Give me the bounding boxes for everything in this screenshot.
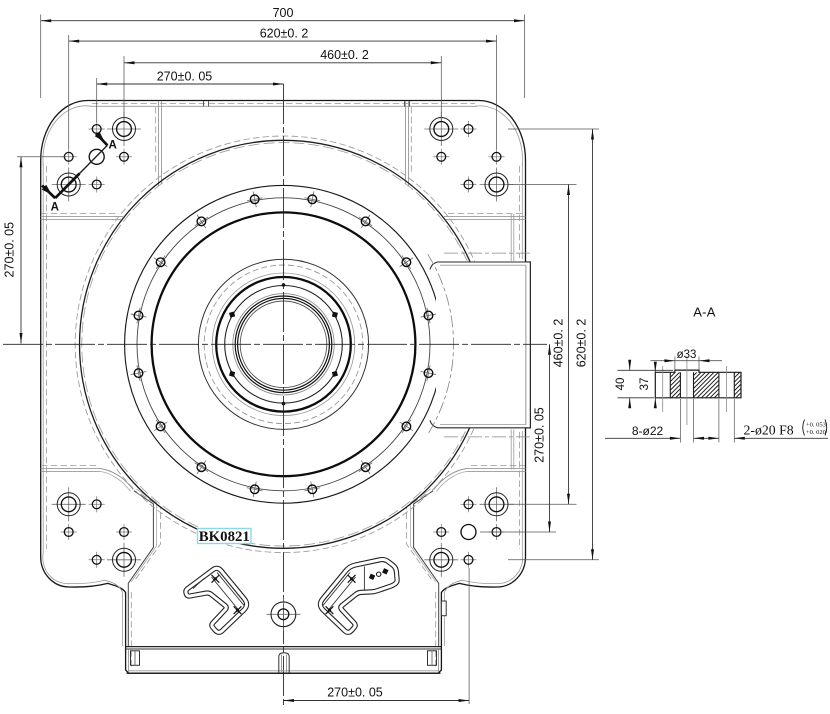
svg-text:37: 37: [639, 378, 651, 391]
svg-text:620±0. 2: 620±0. 2: [575, 319, 589, 368]
svg-text:460±0. 2: 460±0. 2: [320, 48, 369, 62]
svg-text:270±0. 05: 270±0. 05: [3, 222, 17, 278]
svg-text:ø33: ø33: [677, 349, 697, 361]
svg-text:+0. 020: +0. 020: [806, 429, 826, 436]
svg-text:700: 700: [273, 6, 294, 20]
svg-text:A: A: [108, 140, 116, 152]
svg-text:BK0821: BK0821: [199, 529, 250, 545]
svg-text:8-ø22: 8-ø22: [632, 424, 664, 438]
svg-text:A-A: A-A: [693, 305, 716, 320]
svg-text:460±0. 2: 460±0. 2: [552, 319, 566, 368]
svg-text:620±0. 2: 620±0. 2: [260, 27, 309, 41]
svg-text:270±0. 05: 270±0. 05: [157, 69, 213, 83]
svg-text:270±0. 05: 270±0. 05: [327, 686, 383, 700]
svg-text:40: 40: [615, 378, 627, 391]
svg-text:+0. 053: +0. 053: [806, 422, 826, 429]
svg-text:270±0. 05: 270±0. 05: [532, 407, 546, 463]
svg-text:2-ø20 F8: 2-ø20 F8: [744, 423, 794, 438]
svg-text:A: A: [51, 202, 59, 214]
